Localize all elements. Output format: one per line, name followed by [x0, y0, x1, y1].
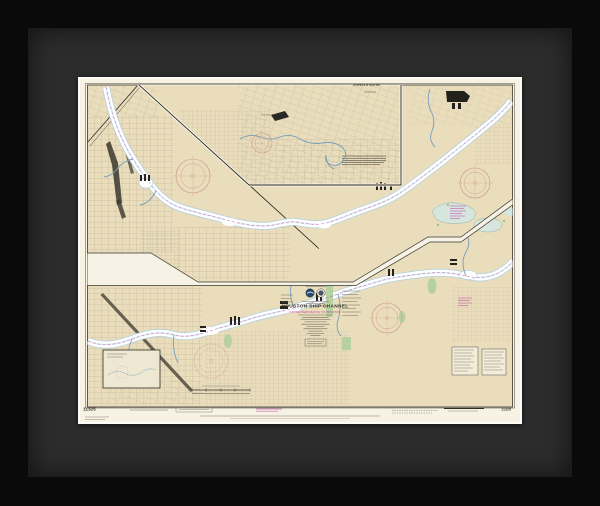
chart-number-right: 11325: [489, 408, 511, 412]
chart-title: HOUSTON SHIP CHANNEL: [277, 304, 354, 309]
chart-subtitle: CARPENTERS BAYOU TO HOUSTON: [288, 311, 342, 314]
lower-left-inset: [103, 350, 160, 388]
chart-graphic: [80, 79, 520, 422]
chart-number-left: 11325: [83, 407, 96, 412]
frame-mat: BUFFALO BAYOU HOUSTON HOUSTON SHIP CHANN…: [28, 28, 572, 477]
chart-paper: BUFFALO BAYOU HOUSTON HOUSTON SHIP CHANN…: [78, 77, 522, 424]
framed-nautical-chart: BUFFALO BAYOU HOUSTON HOUSTON SHIP CHANN…: [0, 0, 600, 506]
placename-houston: HOUSTON: [259, 114, 277, 116]
inset-title: BUFFALO BAYOU: [345, 84, 388, 87]
